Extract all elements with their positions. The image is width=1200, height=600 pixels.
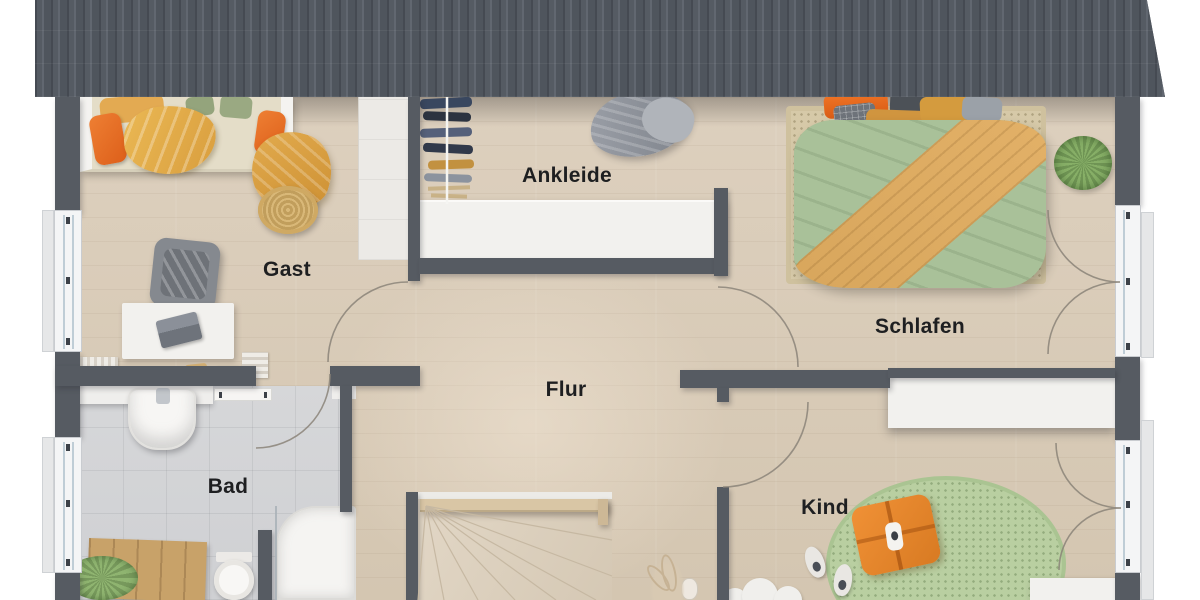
wicker-pouf — [258, 186, 318, 234]
stair-top-edge — [418, 492, 612, 499]
hanger-garment — [420, 127, 472, 138]
ankleide-wall-post — [714, 188, 728, 276]
room-label-kind: Kind — [801, 496, 849, 520]
outer-wall-right — [1115, 97, 1140, 205]
cloud-lobe — [774, 586, 802, 600]
window-right-2 — [1115, 440, 1141, 573]
duvet-tan-blanket — [794, 120, 1046, 288]
gast-east-wall — [408, 97, 420, 281]
toilet-bowl — [214, 560, 254, 600]
kind-north-wall-thin — [888, 368, 1115, 378]
window-sill — [42, 437, 54, 573]
shower — [276, 506, 356, 600]
schlafen-duvet — [794, 120, 1046, 288]
bad-north-wall — [55, 366, 256, 386]
hanger-garment — [423, 111, 471, 122]
window-sill — [42, 210, 54, 352]
hanger-garment — [424, 173, 472, 183]
slipper-lining — [811, 561, 822, 573]
pillow-gray — [961, 96, 1003, 123]
cloud-lobe — [742, 578, 778, 600]
window-shutter — [1141, 420, 1154, 600]
kind-corner-furniture — [1030, 578, 1115, 600]
room-label-flur: Flur — [546, 378, 587, 402]
gast-wardrobe-strip — [358, 97, 409, 260]
cloud-shelf — [722, 578, 808, 600]
kind-wardrobe — [888, 378, 1115, 428]
toilet-niche-wall — [258, 530, 272, 600]
armchair — [149, 237, 222, 312]
toy-doll — [884, 521, 904, 551]
bad-north-wall — [330, 366, 420, 386]
ankleide-sideboard — [419, 200, 726, 258]
ankleide-back-wall — [419, 258, 726, 274]
faucet-icon — [156, 388, 170, 404]
handrail-end-post — [598, 499, 608, 525]
room-label-bad: Bad — [208, 475, 249, 499]
armchair-cushion — [160, 248, 211, 301]
hanger-garment — [428, 159, 474, 170]
bad-east-wall — [340, 386, 352, 512]
floor-plan: Gast Ankleide Schlafen Flur Bad Kind — [0, 0, 1200, 600]
toy-doll-head — [891, 531, 899, 541]
toilet — [212, 552, 256, 600]
kind-west-wall — [717, 487, 729, 600]
roof — [35, 0, 1165, 97]
window-left-1 — [54, 210, 82, 352]
room-label-ankleide: Ankleide — [522, 164, 612, 188]
room-label-schlafen: Schlafen — [875, 315, 965, 339]
bad-door-leaf — [214, 388, 272, 401]
outer-wall-right — [1115, 573, 1140, 600]
outer-wall-left — [55, 573, 80, 600]
sink — [128, 388, 196, 450]
window-right-1 — [1115, 205, 1141, 357]
outer-wall-left — [55, 97, 80, 213]
window-shutter — [1141, 212, 1154, 358]
stair-wall-post — [406, 492, 418, 600]
plant — [1054, 136, 1112, 190]
window-left-2 — [54, 437, 82, 573]
kind-west-wall — [717, 388, 729, 402]
kind-north-wall — [680, 370, 890, 388]
room-label-gast: Gast — [263, 258, 311, 282]
outer-wall-left — [55, 352, 80, 437]
handrail — [420, 499, 608, 512]
plant-sketch — [646, 552, 688, 600]
outer-wall-right — [1115, 357, 1140, 440]
pillow — [219, 95, 253, 120]
slipper-lining — [838, 579, 847, 590]
